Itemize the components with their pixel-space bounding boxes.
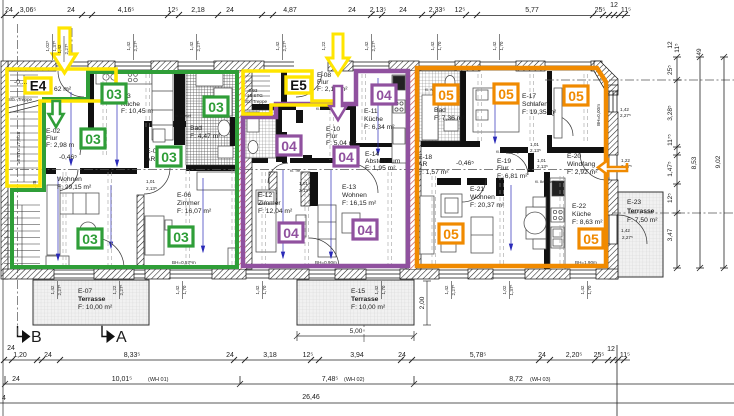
svg-text:1,47⁵: 1,47⁵	[667, 161, 674, 177]
svg-text:4,87: 4,87	[283, 7, 297, 14]
svg-text:Kl. Briefkaste: Kl. Briefkaste	[535, 180, 556, 184]
svg-text:2,13⁵: 2,13⁵	[537, 164, 548, 169]
svg-text:25⁵: 25⁵	[594, 352, 605, 359]
svg-text:Terrasse: Terrasse	[627, 208, 655, 215]
svg-text:E-20: E-20	[567, 153, 581, 160]
svg-text:4: 4	[2, 395, 6, 402]
svg-text:4,16⁵: 4,16⁵	[118, 7, 135, 14]
svg-text:3,06⁵: 3,06⁵	[20, 7, 37, 14]
svg-text:05: 05	[443, 226, 459, 242]
svg-text:E-22: E-22	[572, 203, 586, 210]
svg-text:5,77: 5,77	[525, 7, 539, 14]
svg-text:1,01: 1,01	[299, 181, 308, 186]
svg-text:1,02⁵: 1,02⁵	[45, 40, 50, 51]
svg-text:1,42: 1,42	[364, 41, 369, 50]
svg-text:2,27⁵: 2,27⁵	[620, 113, 631, 118]
svg-text:E-19: E-19	[497, 158, 511, 165]
svg-text:F: 6,34 m²: F: 6,34 m²	[364, 124, 395, 131]
svg-text:2,27⁵: 2,27⁵	[622, 235, 633, 240]
svg-text:1,01: 1,01	[146, 179, 155, 184]
svg-text:11⁷⁵: 11⁷⁵	[667, 134, 674, 146]
svg-text:F: 16,07 m²: F: 16,07 m²	[177, 208, 212, 215]
svg-text:(WH 03): (WH 03)	[530, 377, 551, 383]
svg-text:1,42: 1,42	[175, 285, 180, 294]
svg-text:2,13⁵: 2,13⁵	[530, 148, 541, 153]
svg-text:E-10: E-10	[326, 126, 340, 133]
svg-text:2,00: 2,00	[419, 296, 426, 309]
svg-text:F: 16,15 m²: F: 16,15 m²	[342, 200, 377, 207]
svg-text:F: 1,95 m²: F: 1,95 m²	[365, 165, 396, 172]
svg-text:11⁵: 11⁵	[621, 7, 631, 14]
svg-text:F: 2,92 m²: F: 2,92 m²	[567, 169, 598, 176]
svg-text:24: 24	[5, 7, 13, 14]
svg-text:F: 8,63 m²: F: 8,63 m²	[572, 219, 603, 226]
svg-text:F: 10,45 m: F: 10,45 m	[121, 108, 153, 115]
svg-text:F: 2,98 m: F: 2,98 m	[46, 142, 75, 149]
svg-text:Kl. R.-Eingang: Kl. R.-Eingang	[496, 150, 519, 154]
svg-text:24: 24	[399, 7, 407, 14]
svg-text:1,42: 1,42	[50, 285, 55, 294]
svg-text:Flur: Flur	[497, 165, 509, 172]
svg-text:F: 29,15 m²: F: 29,15 m²	[57, 184, 92, 191]
svg-text:03: 03	[173, 229, 189, 245]
svg-text:04: 04	[357, 222, 373, 238]
svg-text:Kl. Abwurf: Kl. Abwurf	[175, 114, 191, 118]
svg-text:16 STG 17,5/28: 16 STG 17,5/28	[16, 131, 21, 164]
svg-text:24: 24	[226, 7, 234, 14]
svg-text:Abstellraum: Abstellraum	[365, 158, 401, 165]
svg-text:12: 12	[667, 41, 674, 49]
svg-text:1,20: 1,20	[13, 352, 27, 359]
svg-text:8,53: 8,53	[691, 156, 698, 169]
svg-text:62 m²: 62 m²	[54, 86, 72, 93]
svg-text:Flur: Flur	[46, 135, 58, 142]
svg-text:E-02: E-02	[46, 128, 60, 135]
svg-text:1,42: 1,42	[126, 41, 131, 50]
svg-text:AR: AR	[146, 156, 155, 163]
svg-text:12: 12	[610, 2, 618, 9]
svg-text:04: 04	[281, 138, 297, 154]
svg-text:1,22: 1,22	[112, 285, 117, 294]
svg-text:E-11: E-11	[364, 108, 378, 115]
svg-text:11⁵: 11⁵	[620, 352, 630, 359]
svg-text:24: 24	[538, 352, 546, 359]
svg-text:2,18: 2,18	[191, 7, 205, 14]
svg-text:1,42: 1,42	[444, 285, 449, 294]
svg-text:5,00: 5,00	[350, 328, 363, 335]
svg-text:9,02: 9,02	[715, 155, 722, 168]
svg-text:E-23: E-23	[627, 199, 641, 206]
svg-text:04: 04	[376, 87, 392, 103]
svg-text:8,33⁵: 8,33⁵	[124, 352, 141, 359]
svg-text:F: 10,00 m²: F: 10,00 m²	[351, 304, 386, 311]
svg-text:E-18: E-18	[418, 154, 432, 161]
svg-text:1,42: 1,42	[430, 41, 435, 50]
svg-text:24: 24	[44, 352, 52, 359]
svg-text:(WH 02): (WH 02)	[344, 377, 365, 383]
svg-text:F: 10,00 m²: F: 10,00 m²	[78, 304, 113, 311]
svg-text:B: B	[31, 329, 42, 346]
svg-text:05: 05	[498, 86, 514, 102]
svg-text:Stb.-Treppe: Stb.-Treppe	[243, 99, 268, 104]
svg-text:Zimmer: Zimmer	[258, 200, 281, 207]
svg-text:(WH 01): (WH 01)	[148, 377, 169, 383]
svg-text:F: 19,35 m²: F: 19,35 m²	[522, 109, 557, 116]
svg-text:A: A	[116, 329, 127, 346]
svg-text:BH=0,57⁵m: BH=0,57⁵m	[172, 260, 196, 265]
svg-text:8,72: 8,72	[509, 376, 523, 383]
svg-text:AR: AR	[418, 161, 427, 168]
svg-text:Bad: Bad	[190, 125, 202, 132]
svg-text:Bad: Bad	[434, 107, 446, 114]
svg-text:04: 04	[283, 225, 299, 241]
svg-text:2,13⁵: 2,13⁵	[370, 7, 387, 14]
svg-text:1,02: 1,02	[502, 285, 507, 294]
svg-text:Küche: Küche	[364, 116, 383, 123]
svg-text:1,42: 1,42	[275, 41, 280, 50]
svg-text:1,42: 1,42	[620, 107, 629, 112]
svg-text:24: 24	[7, 345, 15, 352]
svg-text:24: 24	[12, 376, 20, 383]
svg-text:03: 03	[85, 131, 101, 147]
svg-text:11⁵: 11⁵	[674, 43, 681, 53]
svg-text:-0,46⁵: -0,46⁵	[59, 154, 77, 161]
svg-text:F: 1,57 m²: F: 1,57 m²	[418, 169, 449, 176]
svg-text:BH=0,00m: BH=0,00m	[596, 104, 601, 126]
svg-text:05: 05	[583, 231, 599, 247]
svg-text:25⁵: 25⁵	[595, 7, 606, 14]
svg-text:F: 12,04 m²: F: 12,04 m²	[258, 208, 293, 215]
svg-text:5,78⁵: 5,78⁵	[470, 352, 487, 359]
svg-text:24: 24	[348, 7, 356, 14]
svg-text:Zimmer: Zimmer	[177, 200, 200, 207]
svg-text:1,22: 1,22	[621, 158, 630, 163]
svg-text:E-21: E-21	[470, 186, 484, 193]
svg-text:E-12: E-12	[258, 192, 272, 199]
svg-text:E-07: E-07	[78, 288, 92, 295]
svg-text:26,46: 26,46	[302, 394, 320, 401]
svg-text:-0,...: -0,...	[14, 79, 28, 86]
svg-text:Flur: Flur	[326, 133, 338, 140]
svg-text:Wohnen: Wohnen	[342, 192, 367, 199]
svg-text:E-08: E-08	[317, 72, 331, 79]
svg-text:24: 24	[67, 7, 75, 14]
svg-text:12⁵: 12⁵	[168, 7, 179, 14]
svg-text:Stb.-Treppe: Stb.-Treppe	[8, 97, 33, 102]
svg-text:2,27⁵: 2,27⁵	[64, 43, 69, 54]
svg-text:03: 03	[82, 231, 98, 247]
svg-text:10,01⁵: 10,01⁵	[112, 376, 133, 383]
svg-text:05: 05	[568, 88, 584, 104]
svg-text:3,47: 3,47	[667, 228, 674, 241]
svg-text:12: 12	[607, 346, 615, 353]
svg-text:E-15: E-15	[351, 288, 365, 295]
svg-text:24: 24	[226, 352, 234, 359]
svg-text:F: 7,36 m²: F: 7,36 m²	[434, 115, 465, 122]
svg-text:1,42: 1,42	[255, 285, 260, 294]
svg-text:05: 05	[438, 87, 454, 103]
svg-text:Wohnen: Wohnen	[470, 194, 495, 201]
svg-text:03: 03	[106, 86, 122, 102]
svg-text:12⁵: 12⁵	[455, 7, 466, 14]
svg-text:Flur: Flur	[317, 79, 329, 86]
svg-text:12⁵: 12⁵	[667, 193, 674, 203]
svg-text:E5: E5	[290, 78, 307, 93]
svg-text:49: 49	[696, 48, 703, 56]
svg-text:3,18: 3,18	[263, 352, 277, 359]
svg-text:1,42: 1,42	[492, 41, 497, 50]
svg-text:2,20⁵: 2,20⁵	[566, 352, 583, 359]
svg-text:1,42: 1,42	[580, 285, 585, 294]
svg-text:Schlafen: Schlafen	[522, 101, 548, 108]
svg-text:1,22: 1,22	[321, 41, 326, 50]
svg-text:E-13: E-13	[342, 184, 356, 191]
svg-text:24: 24	[398, 352, 406, 359]
svg-text:1,42: 1,42	[57, 44, 62, 53]
svg-text:Terrasse: Terrasse	[78, 296, 106, 303]
svg-text:-0,46⁵: -0,46⁵	[456, 160, 474, 167]
svg-text:16 STG: 16 STG	[247, 93, 263, 98]
svg-text:03: 03	[208, 99, 224, 115]
svg-text:Terrasse: Terrasse	[351, 296, 379, 303]
svg-text:2,33⁵: 2,33⁵	[429, 7, 446, 14]
svg-text:E-14: E-14	[365, 151, 379, 158]
svg-text:3,94: 3,94	[350, 352, 364, 359]
svg-text:12⁵: 12⁵	[303, 352, 314, 359]
svg-text:Wohnen: Wohnen	[57, 176, 82, 183]
svg-text:E4: E4	[30, 79, 47, 94]
svg-text:03: 03	[161, 149, 177, 165]
svg-text:25⁵: 25⁵	[667, 65, 674, 75]
svg-text:3,28⁵: 3,28⁵	[667, 105, 674, 121]
svg-text:7,48⁵: 7,48⁵	[322, 376, 339, 383]
svg-text:Küche: Küche	[572, 211, 591, 218]
svg-text:1,42: 1,42	[189, 41, 194, 50]
svg-text:2,13⁵: 2,13⁵	[146, 186, 157, 191]
svg-text:F: 6,81 m²: F: 6,81 m²	[497, 173, 528, 180]
svg-text:F: 20,37 m²: F: 20,37 m²	[470, 202, 505, 209]
svg-text:F: 4,47 m²: F: 4,47 m²	[190, 133, 221, 140]
svg-text:E-17: E-17	[522, 93, 536, 100]
svg-text:1,42: 1,42	[621, 228, 630, 233]
svg-text:1,42: 1,42	[374, 285, 379, 294]
svg-text:F: 2,12 m²: F: 2,12 m²	[317, 86, 348, 93]
svg-text:1,01: 1,01	[537, 158, 546, 163]
svg-text:Windfang: Windfang	[567, 161, 596, 168]
svg-text:04: 04	[338, 149, 354, 165]
svg-text:1,01: 1,01	[530, 142, 539, 147]
